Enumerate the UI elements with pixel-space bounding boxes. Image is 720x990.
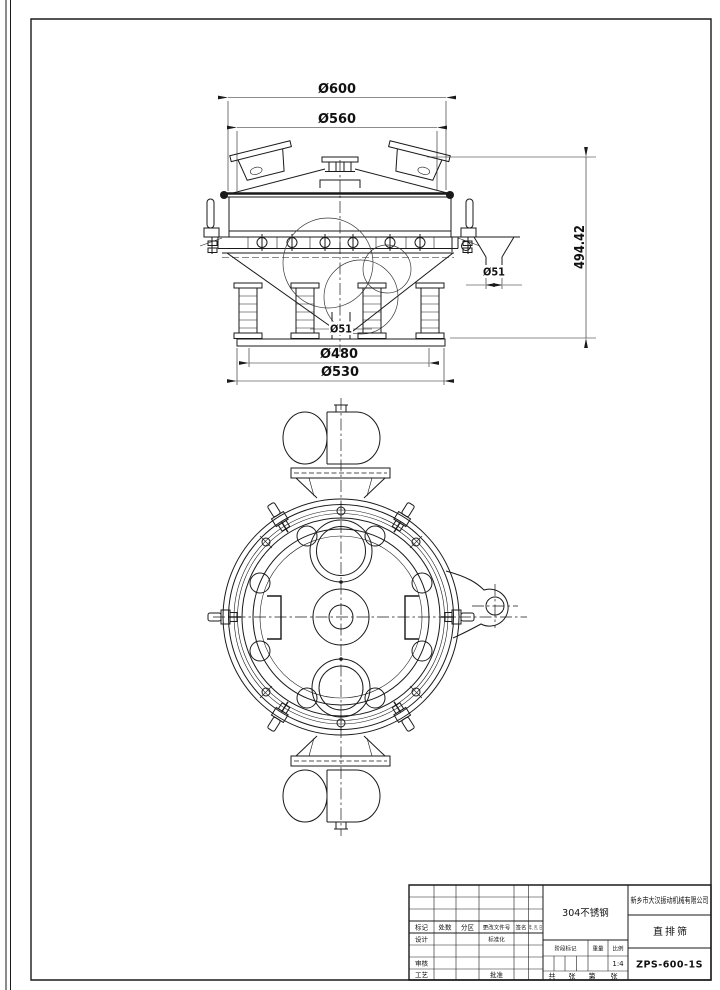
spring-leg [291, 283, 319, 339]
dim-480: Ø480 [249, 347, 429, 367]
material-value: 304不锈钢 [562, 907, 609, 919]
product-name: 直排筛 [653, 925, 689, 938]
dim-label-top-outer: Ø600 [318, 82, 356, 97]
spring-leg [416, 283, 444, 339]
front-view [200, 141, 520, 352]
label-signature: 签名 [515, 924, 526, 932]
right-nozzle [383, 141, 450, 183]
dim-label-side-outlet: Ø51 [483, 266, 505, 279]
scale-value: 1:4 [612, 960, 624, 968]
top-motor [283, 405, 390, 498]
label-weight: 重量 [592, 945, 604, 953]
left-nozzle [230, 141, 297, 183]
outlet-lug [446, 571, 518, 638]
spec-section: 304不锈钢 阶段标记 重量 比例 1:4 共 张 第 张 [543, 907, 628, 981]
label-scale: 比例 [612, 945, 624, 953]
label-sheet-unit1: 张 [569, 972, 576, 981]
label-zone: 分区 [461, 923, 475, 932]
dim-label-screen: Ø560 [318, 112, 356, 127]
dim-600: Ø600 [228, 82, 446, 191]
company-name: 新乡市大汉振动机械有限公司 [631, 895, 709, 905]
base-ring [237, 339, 445, 346]
dim-side-outlet: Ø51 [466, 265, 522, 289]
dim-label-base: Ø530 [321, 365, 359, 380]
drawing-number: ZPS-600-1S [636, 960, 703, 971]
label-sheet-unit2: 张 [611, 972, 618, 981]
id-section: 新乡市大汉振动机械有限公司 直排筛 ZPS-600-1S [628, 895, 711, 971]
label-sheet-index: 第 [589, 972, 596, 981]
title-block: 标记 处数 分区 更改文件号 签名 年、月、日 设计 标准化 审核 工艺 批准 … [409, 885, 711, 981]
label-sheet-total: 共 [549, 972, 556, 981]
dim-label-base-bolt-circle: Ø480 [320, 347, 358, 362]
label-standardization: 标准化 [488, 936, 505, 944]
spring-leg [358, 283, 386, 339]
label-change-file-no: 更改文件号 [483, 924, 511, 932]
spring-leg [234, 283, 262, 339]
left-clamp [200, 199, 222, 254]
label-date: 年、月、日 [529, 924, 542, 932]
label-stage-mark: 阶段标记 [554, 945, 577, 953]
plan-view [208, 398, 527, 836]
dim-label-height: 494.42 [573, 225, 588, 269]
label-approve: 批准 [490, 970, 504, 979]
drawing-sheet: Ø600 Ø560 494.42 Ø51 Ø51 [0, 0, 720, 990]
label-process: 工艺 [415, 971, 429, 979]
motor-phantom-circle [363, 245, 411, 293]
label-count: 处数 [439, 923, 453, 932]
bottom-motor [283, 736, 390, 829]
sheet-border [6, 0, 711, 990]
mesh-handles [267, 596, 419, 639]
label-mark: 标记 [415, 923, 429, 932]
label-design: 设计 [415, 935, 429, 944]
dimensions: Ø600 Ø560 494.42 Ø51 Ø51 [228, 82, 596, 385]
cad-canvas: Ø600 Ø560 494.42 Ø51 Ø51 [0, 0, 720, 990]
bolt-flange [218, 234, 520, 251]
revision-grid: 标记 处数 分区 更改文件号 签名 年、月、日 设计 标准化 审核 工艺 批准 [409, 885, 543, 980]
dim-label-bottom-outlet: Ø51 [330, 323, 352, 336]
label-review: 审核 [415, 959, 429, 968]
